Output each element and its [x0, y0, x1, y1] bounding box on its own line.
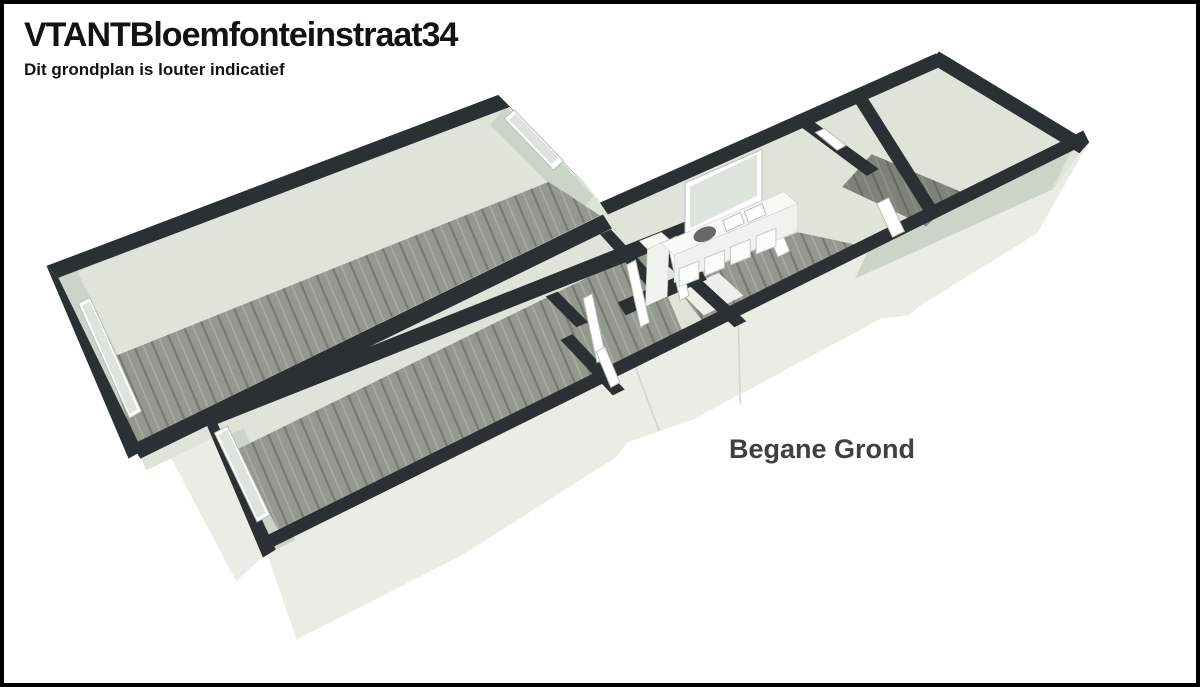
floorplan-page: VTANTBloemfonteinstraat34 Dit grondplan …	[0, 0, 1200, 687]
page-subtitle: Dit grondplan is louter indicatief	[24, 60, 285, 80]
tall-cabinet-front	[645, 239, 669, 306]
floor-label: Begane Grond	[729, 434, 915, 465]
floorplan-drawing	[4, 4, 1196, 683]
page-title: VTANTBloemfonteinstraat34	[24, 16, 457, 55]
